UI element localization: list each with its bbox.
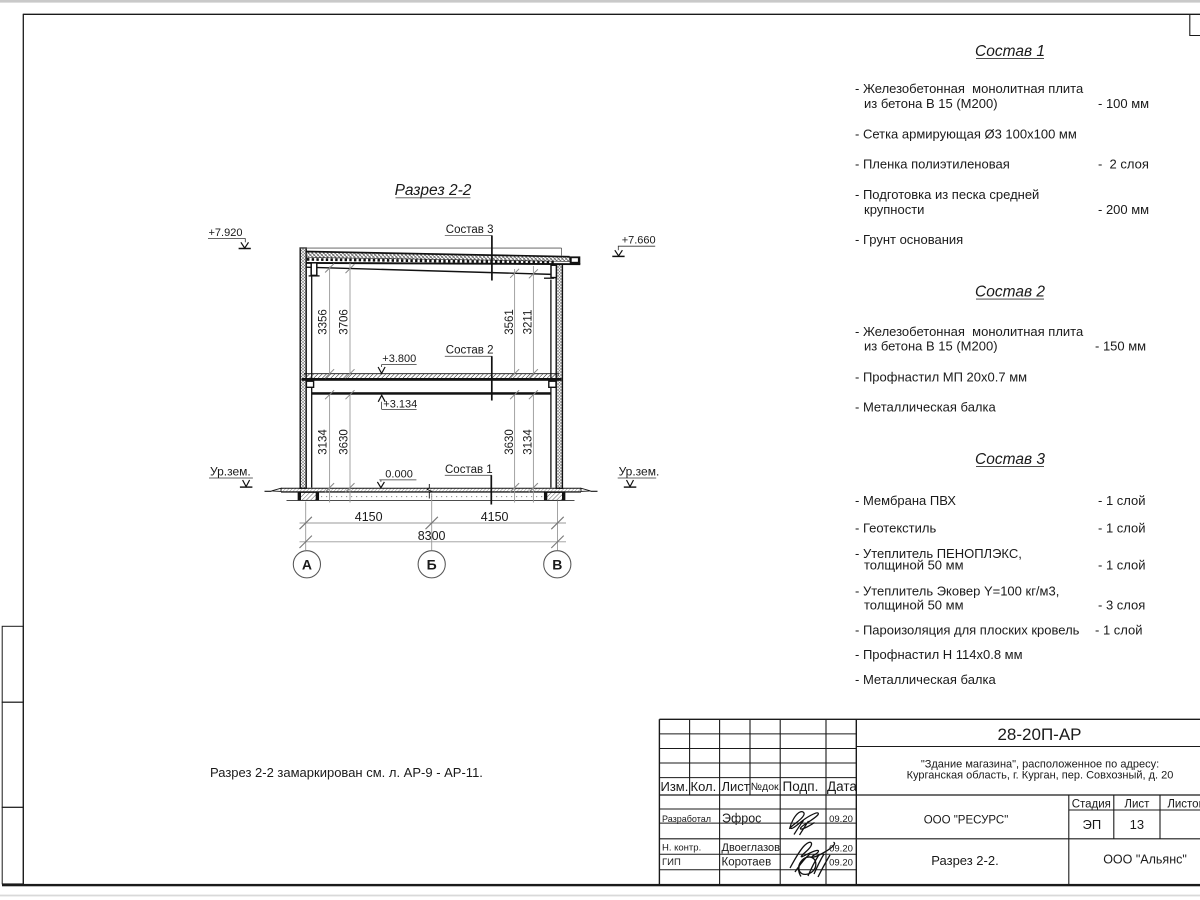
svg-text:- Железобетонная монолитная п: - Железобетонная монолитная плита: [855, 324, 1084, 339]
svg-text:- Подготовка из песка средней: - Подготовка из песка средней: [855, 187, 1039, 202]
svg-text:3356: 3356: [317, 309, 329, 335]
svg-text:- 100 мм: - 100 мм: [1098, 96, 1149, 111]
svg-text:№док.: №док.: [751, 781, 782, 793]
svg-text:ООО "РЕСУРС": ООО "РЕСУРС": [924, 814, 1009, 826]
svg-text:09.20: 09.20: [829, 858, 853, 869]
svg-text:Стадия: Стадия: [1072, 799, 1111, 811]
svg-text:Разработал: Разработал: [662, 814, 711, 824]
svg-text:3134: 3134: [522, 429, 534, 455]
svg-text:+3.134: +3.134: [383, 398, 417, 410]
svg-text:Разрез 2-2.: Разрез 2-2.: [931, 853, 998, 868]
svg-text:13: 13: [1130, 817, 1144, 832]
svg-text:Кол.: Кол.: [691, 779, 717, 794]
svg-text:Подп.: Подп.: [783, 779, 819, 794]
svg-text:3630: 3630: [504, 429, 516, 455]
svg-text:Дата: Дата: [827, 779, 857, 794]
svg-text:Состав 1: Состав 1: [975, 43, 1045, 60]
svg-text:3706: 3706: [339, 309, 351, 335]
svg-text:09.20: 09.20: [829, 814, 853, 825]
svg-text:- Пароизоляция для плоских кро: - Пароизоляция для плоских кровель: [855, 622, 1080, 637]
svg-text:Ур.зем.: Ур.зем.: [619, 465, 660, 479]
svg-text:- Геотекстиль: - Геотекстиль: [855, 521, 936, 536]
svg-text:+3.800: +3.800: [382, 353, 416, 365]
svg-text:0.000: 0.000: [385, 468, 413, 480]
svg-text:Состав 3: Состав 3: [446, 224, 494, 236]
svg-text:- 150 мм: - 150 мм: [1095, 339, 1146, 354]
svg-text:4150: 4150: [481, 510, 509, 524]
svg-text:4150: 4150: [355, 510, 383, 524]
svg-text:Лист: Лист: [722, 779, 750, 794]
svg-text:Лист: Лист: [1124, 799, 1150, 811]
svg-text:- 1 слой: - 1 слой: [1098, 493, 1146, 508]
svg-text:ООО "Альянс": ООО "Альянс": [1103, 853, 1187, 867]
svg-text:Б: Б: [427, 557, 437, 573]
svg-text:Состав 2: Состав 2: [446, 345, 494, 357]
svg-text:из бетона В 15 (М200): из бетона В 15 (М200): [864, 96, 998, 111]
svg-text:- 1 слой: - 1 слой: [1098, 558, 1146, 573]
svg-text:толщиной 50 мм: толщиной 50 мм: [864, 558, 964, 573]
svg-text:- 200 мм: - 200 мм: [1098, 202, 1149, 217]
svg-text:- Металлическая балка: - Металлическая балка: [855, 672, 996, 687]
svg-text:- Металлическая балка: - Металлическая балка: [855, 400, 996, 415]
svg-text:- Профнастил МП 20х0.7 мм: - Профнастил МП 20х0.7 мм: [855, 370, 1027, 385]
svg-text:8300: 8300: [418, 529, 446, 543]
svg-text:Листов: Листов: [1167, 799, 1200, 811]
svg-text:3211: 3211: [522, 310, 534, 335]
svg-text:Эфрос: Эфрос: [722, 811, 761, 825]
svg-text:Состав 1: Состав 1: [445, 464, 493, 476]
svg-text:3561: 3561: [504, 309, 516, 335]
svg-text:- Утеплитель Эковер Y=100 кг/м: - Утеплитель Эковер Y=100 кг/м3,: [855, 583, 1059, 598]
svg-text:Состав 3: Состав 3: [975, 451, 1045, 468]
svg-text:- Железобетонная монолитная п: - Железобетонная монолитная плита: [855, 81, 1084, 96]
svg-text:- 2 слоя: - 2 слоя: [1098, 157, 1149, 172]
svg-text:+7.660: +7.660: [622, 234, 656, 246]
svg-text:крупности: крупности: [864, 202, 924, 217]
svg-text:- Грунт основания: - Грунт основания: [855, 232, 963, 247]
svg-text:- Профнастил Н 114х0.8 мм: - Профнастил Н 114х0.8 мм: [855, 647, 1023, 662]
svg-text:3630: 3630: [339, 429, 351, 455]
svg-text:- 1 слой: - 1 слой: [1098, 521, 1146, 536]
svg-text:Разрез 2-2: Разрез 2-2: [395, 182, 472, 199]
svg-text:- Мембрана ПВХ: - Мембрана ПВХ: [855, 493, 956, 508]
svg-text:В: В: [552, 557, 562, 573]
svg-text:- 1 слой: - 1 слой: [1095, 622, 1143, 637]
svg-text:ЭП: ЭП: [1083, 817, 1102, 832]
svg-text:Ур.зем.: Ур.зем.: [210, 465, 251, 479]
svg-text:- 3 слоя: - 3 слоя: [1098, 598, 1145, 613]
svg-text:ГИП: ГИП: [662, 857, 681, 868]
svg-text:из бетона В 15 (М200): из бетона В 15 (М200): [864, 339, 998, 354]
svg-text:А: А: [302, 557, 312, 573]
svg-text:Двоеглазов: Двоеглазов: [722, 842, 781, 854]
svg-text:- Сетка армирующая Ø3 100х100: - Сетка армирующая Ø3 100х100 мм: [855, 127, 1077, 142]
svg-text:Разрез 2-2 замаркирован см. л.: Разрез 2-2 замаркирован см. л. АР-9 - АР…: [210, 765, 483, 780]
svg-text:28-20П-АР: 28-20П-АР: [997, 725, 1081, 744]
svg-text:- Пленка полиэтиленовая: - Пленка полиэтиленовая: [855, 157, 1010, 172]
svg-text:Курганская область, г. Курган,: Курганская область, г. Курган, пер. Совх…: [907, 770, 1174, 782]
svg-text:09.20: 09.20: [829, 844, 853, 855]
svg-text:Коротаев: Коротаев: [722, 856, 772, 868]
svg-text:толщиной 50 мм: толщиной 50 мм: [864, 598, 964, 613]
svg-text:Н. контр.: Н. контр.: [662, 842, 701, 853]
svg-text:3134: 3134: [317, 429, 329, 455]
svg-text:Состав 2: Состав 2: [975, 283, 1045, 300]
svg-text:+7.920: +7.920: [209, 227, 243, 239]
svg-text:Изм.: Изм.: [661, 779, 689, 794]
